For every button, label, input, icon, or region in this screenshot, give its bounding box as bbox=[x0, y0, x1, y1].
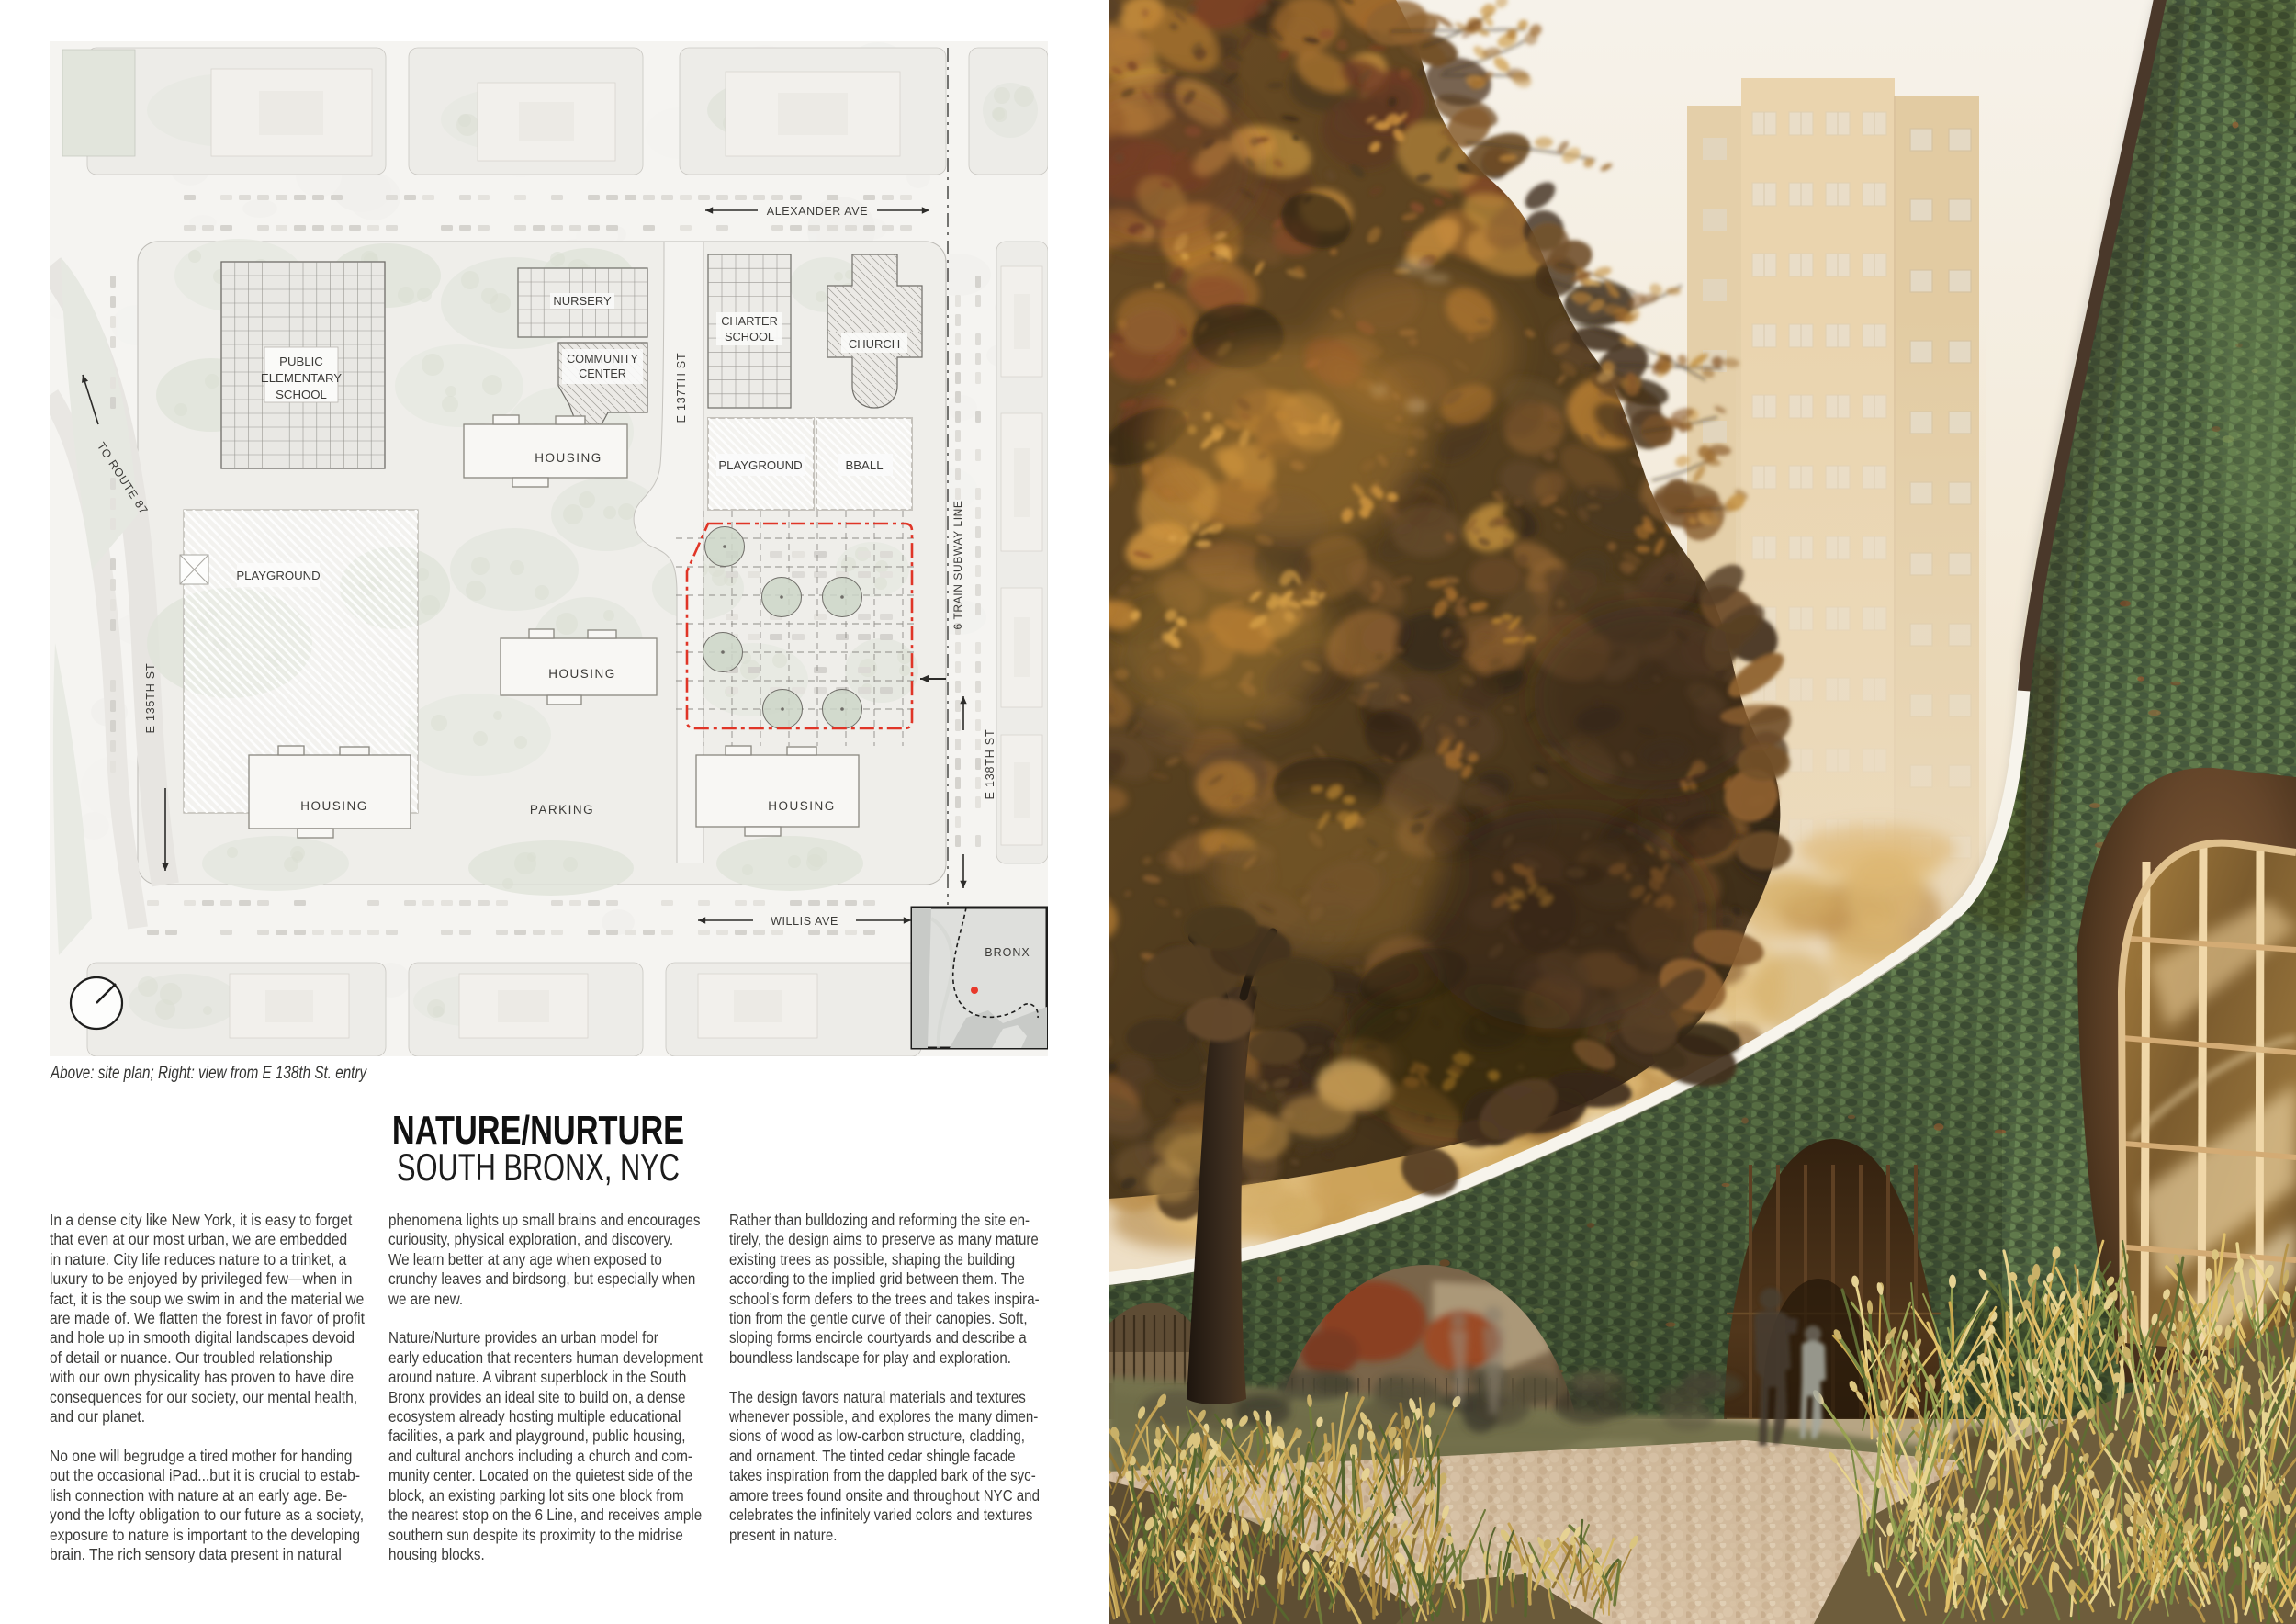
svg-text:ALEXANDER AVE: ALEXANDER AVE bbox=[767, 205, 868, 218]
svg-text:CENTER: CENTER bbox=[579, 367, 626, 380]
svg-text:ELEMENTARY: ELEMENTARY bbox=[261, 371, 342, 385]
svg-text:E 135TH ST: E 135TH ST bbox=[144, 663, 157, 734]
svg-text:PUBLIC: PUBLIC bbox=[279, 355, 323, 368]
svg-text:SCHOOL: SCHOOL bbox=[276, 388, 327, 401]
svg-text:E 137TH ST: E 137TH ST bbox=[675, 353, 688, 423]
svg-text:HOUSING: HOUSING bbox=[300, 799, 368, 813]
svg-text:6 TRAIN SUBWAY LINE: 6 TRAIN SUBWAY LINE bbox=[951, 501, 964, 630]
svg-text:E 138TH ST: E 138TH ST bbox=[984, 729, 996, 800]
svg-text:CHURCH: CHURCH bbox=[849, 337, 900, 351]
svg-text:HOUSING: HOUSING bbox=[768, 799, 836, 813]
svg-text:COMMUNITY: COMMUNITY bbox=[567, 353, 638, 366]
svg-text:BBALL: BBALL bbox=[845, 458, 883, 472]
svg-text:PLAYGROUND: PLAYGROUND bbox=[236, 569, 320, 582]
svg-text:CHARTER: CHARTER bbox=[721, 314, 778, 328]
svg-text:HOUSING: HOUSING bbox=[548, 667, 616, 681]
svg-text:WILLIS AVE: WILLIS AVE bbox=[771, 915, 838, 928]
svg-text:HOUSING: HOUSING bbox=[535, 451, 602, 465]
svg-text:BRONX: BRONX bbox=[985, 946, 1030, 959]
svg-text:SCHOOL: SCHOOL bbox=[725, 330, 774, 344]
svg-text:PARKING: PARKING bbox=[530, 803, 594, 817]
svg-text:PLAYGROUND: PLAYGROUND bbox=[718, 458, 802, 472]
svg-text:NURSERY: NURSERY bbox=[553, 294, 612, 308]
